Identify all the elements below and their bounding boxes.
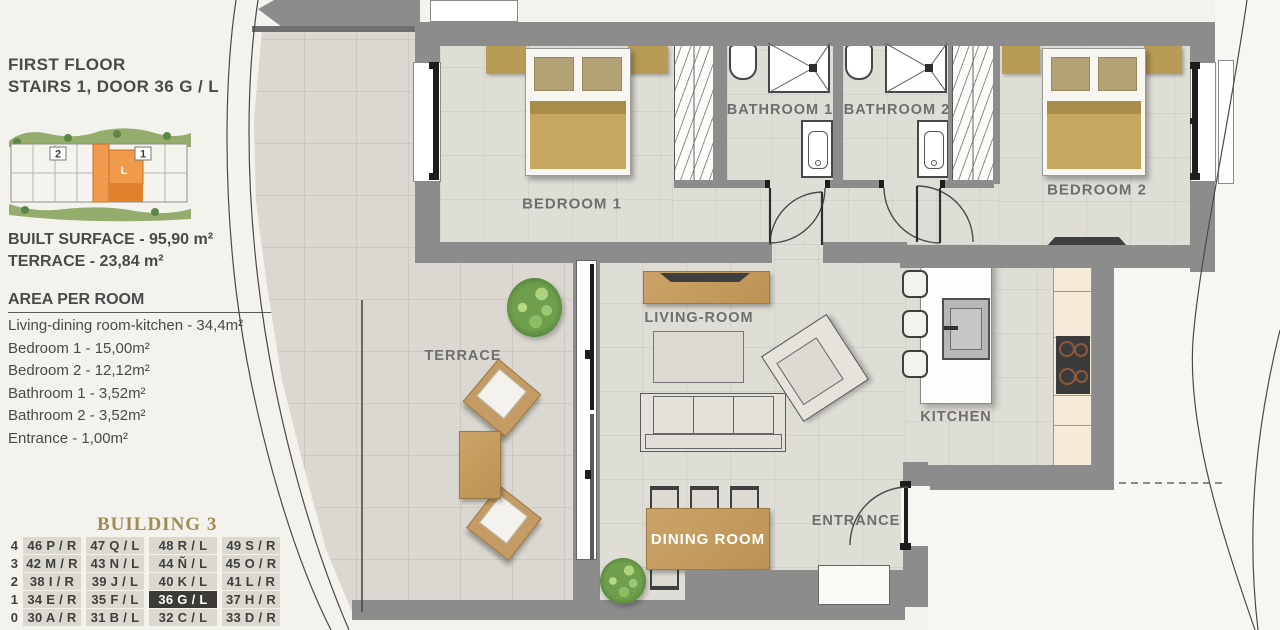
sink-drain [931,160,937,166]
site-map-green-bottom [9,204,191,221]
wall-top [415,22,1215,46]
floor-number: 3 [4,555,18,572]
unit-cell: 42 M / R [23,555,81,572]
dining-tree [600,558,646,604]
unit-cell: 31 B / L [86,609,144,626]
bar-stool [902,350,928,378]
skylight-strip [430,0,518,22]
bathroom2-label: BATHROOM 2 [844,102,950,118]
wall-wardrobe-bedroom2 [993,22,1000,184]
unit-cell: 34 E / R [23,591,81,608]
burner [1059,368,1076,385]
sink-bathroom2 [917,120,949,178]
site-map-highlight-unit-terrace [109,184,143,202]
glass-door-frame [590,264,594,410]
unit-cell: 37 H / R [222,591,280,608]
armchair-seat [776,337,843,405]
pillow [582,57,622,91]
bed-fold [530,101,626,114]
pillow [1098,57,1137,91]
window-hinge [1190,173,1200,180]
terrace-surface-text: TERRACE - 23,84 m² [8,253,164,271]
unit-cell: 47 Q / L [86,537,144,554]
area-per-room-list: Living-dining room-kitchen - 34,4m² Bedr… [8,315,243,450]
wall-entrance-south [903,545,928,607]
unit-cell: 40 K / L [149,573,217,590]
dining-room-label: DINING ROOM [651,531,765,548]
terrace-tree [507,278,562,337]
burner [1074,343,1088,357]
window-hinge [1190,62,1200,69]
window-hinge [429,173,439,180]
window-hinge [1190,118,1198,124]
unit-cell: 41 L / R [222,573,280,590]
window-hinge [429,62,439,69]
door-jamb [825,180,830,188]
burner [1059,341,1075,357]
sofa [640,393,786,452]
built-surface-text: BUILT SURFACE - 95,90 m² [8,231,213,249]
sink-drain [815,160,821,166]
wall-niche [818,565,890,605]
unit-cell: 39 J / L [86,573,144,590]
site-map-bush [64,134,72,142]
kitchen-faucet [944,326,958,330]
sofa-seat-divider [733,397,734,433]
area-item: Entrance - 1,00m² [8,428,243,451]
shower-bathroom2 [885,43,947,93]
bed-duvet [530,114,626,169]
door-jamb [879,180,884,188]
entrance-door-hinge [900,481,911,488]
cooktop [1056,336,1090,394]
wall-bedroom1-bathroom1 [713,22,727,184]
bedroom2-bed [1042,48,1146,176]
site-map-stair2-label: 2 [55,149,61,161]
entrance-door-hinge [900,543,911,550]
kitchen-label: KITCHEN [920,409,991,425]
bathroom1-label: BATHROOM 1 [727,102,833,118]
unit-cell-highlighted: 36 G / L [149,591,217,608]
toilet-bathroom1 [729,44,757,80]
bedroom1-headboard-cabinet [486,46,526,74]
dining-chair [730,486,759,510]
window-bedroom1-frame [433,66,439,178]
unit-cell: 32 C / L [149,609,217,626]
wardrobe-bedroom2 [952,38,994,183]
sofa-seats [653,396,774,434]
pillow [1051,57,1090,91]
unit-cell: 43 N / L [86,555,144,572]
area-item: Bedroom 1 - 15,00m² [8,338,243,361]
glass-door-frame [590,414,594,560]
window-sill-outside [1218,60,1234,184]
wall-hall-living [823,242,907,263]
sofa-seat-divider [693,397,694,433]
shower-bathroom1 [768,43,830,93]
bedroom1-headboard-cabinet [628,46,668,74]
coffee-table [653,331,744,383]
wall-bathrooms-hall [674,180,994,188]
unit-cell: 46 P / R [23,537,81,554]
bedroom1-bed [525,48,631,176]
terrace-coffee-table [459,431,501,499]
bedroom2-label: BEDROOM 2 [1047,182,1147,199]
area-item: Bedroom 2 - 12,12m² [8,360,243,383]
floor-title-line2: STAIRS 1, DOOR 36 G / L [8,77,219,97]
door-jamb [940,180,945,188]
unit-cell: 35 F / L [86,591,144,608]
floor-hall [672,183,1000,245]
entrance-label: ENTRANCE [812,513,901,529]
living-tv [660,273,750,282]
wall-bathroom1-bathroom2 [833,22,843,184]
bar-stool [902,310,928,338]
unit-cell: 44 Ñ / L [149,555,217,572]
entrance-door-leaf [904,487,908,545]
unit-cell: 48 R / L [149,537,217,554]
bar-stool [902,270,928,298]
area-item: Bathroom 1 - 3,52m² [8,383,243,406]
bed-duvet [1047,114,1141,169]
counter-divider [1054,291,1091,292]
floor-number: 2 [4,573,18,590]
wall-bedroom2-kitchen [900,245,1215,268]
area-item: Living-dining room-kitchen - 34,4m² [8,315,243,338]
floor-title-line1: FIRST FLOOR [8,55,126,75]
kitchen-sink [942,298,990,360]
counter-divider [1054,425,1091,426]
area-item: Bathroom 2 - 3,52m² [8,405,243,428]
bedroom2-headboard-cabinet [1002,46,1040,74]
unit-cell: 49 S / R [222,537,280,554]
sink-bathroom1 [801,120,833,178]
counter-divider [1054,395,1091,396]
door-opening-bathroom1 [769,179,826,189]
unit-cell: 33 D / R [222,609,280,626]
unit-cell: 38 I / R [23,573,81,590]
site-map-stair1-label: 1 [140,149,146,161]
site-map-bush [151,208,159,216]
glass-door-handle [585,350,591,359]
site-map-bush [163,132,171,140]
unit-cell: 30 A / R [23,609,81,626]
floor-number: 4 [4,537,18,554]
wall-kitchen-east [1092,268,1114,490]
sofa-back [645,434,782,449]
living-room-label: LIVING-ROOM [644,310,753,326]
wall-terrace-top [252,26,417,32]
dining-chair [650,486,679,510]
toilet-bathroom2 [845,44,873,80]
glass-door-handle [585,470,591,479]
bedroom1-label: BEDROOM 1 [522,196,622,213]
wardrobe-bedroom1 [674,38,714,183]
floor-number: 1 [4,591,18,608]
terrace-label: TERRACE [424,348,501,364]
unit-cell: 45 O / R [222,555,280,572]
armchair-cushion [476,368,527,419]
bedroom2-headboard-cabinet [1144,46,1182,74]
door-jamb [765,180,770,188]
area-per-room-header: AREA PER ROOM [8,291,276,313]
site-map: 2 1 L [5,120,195,228]
dining-table: DINING ROOM [646,508,770,570]
armchair-cushion [479,495,528,544]
site-map-unit-letter: L [121,165,128,177]
unit-table: 4 46 P / R 47 Q / L 48 R / L 49 S / R 3 … [4,537,280,626]
site-map-bush [113,130,121,138]
site-map-bush [21,206,29,214]
dining-chair [690,486,719,510]
door-opening-bathroom2 [883,179,941,189]
floor-number: 0 [4,609,18,626]
wall-kitchen-south [905,465,1114,490]
burner [1075,370,1088,383]
floorplan-page: FIRST FLOOR STAIRS 1, DOOR 36 G / L 2 1 … [0,0,1280,630]
building-title: BUILDING 3 [97,514,217,536]
wall-neighbor-top [258,0,420,26]
pillow [534,57,574,91]
site-map-highlight-unit-left [93,144,109,202]
bed-fold [1047,101,1141,114]
